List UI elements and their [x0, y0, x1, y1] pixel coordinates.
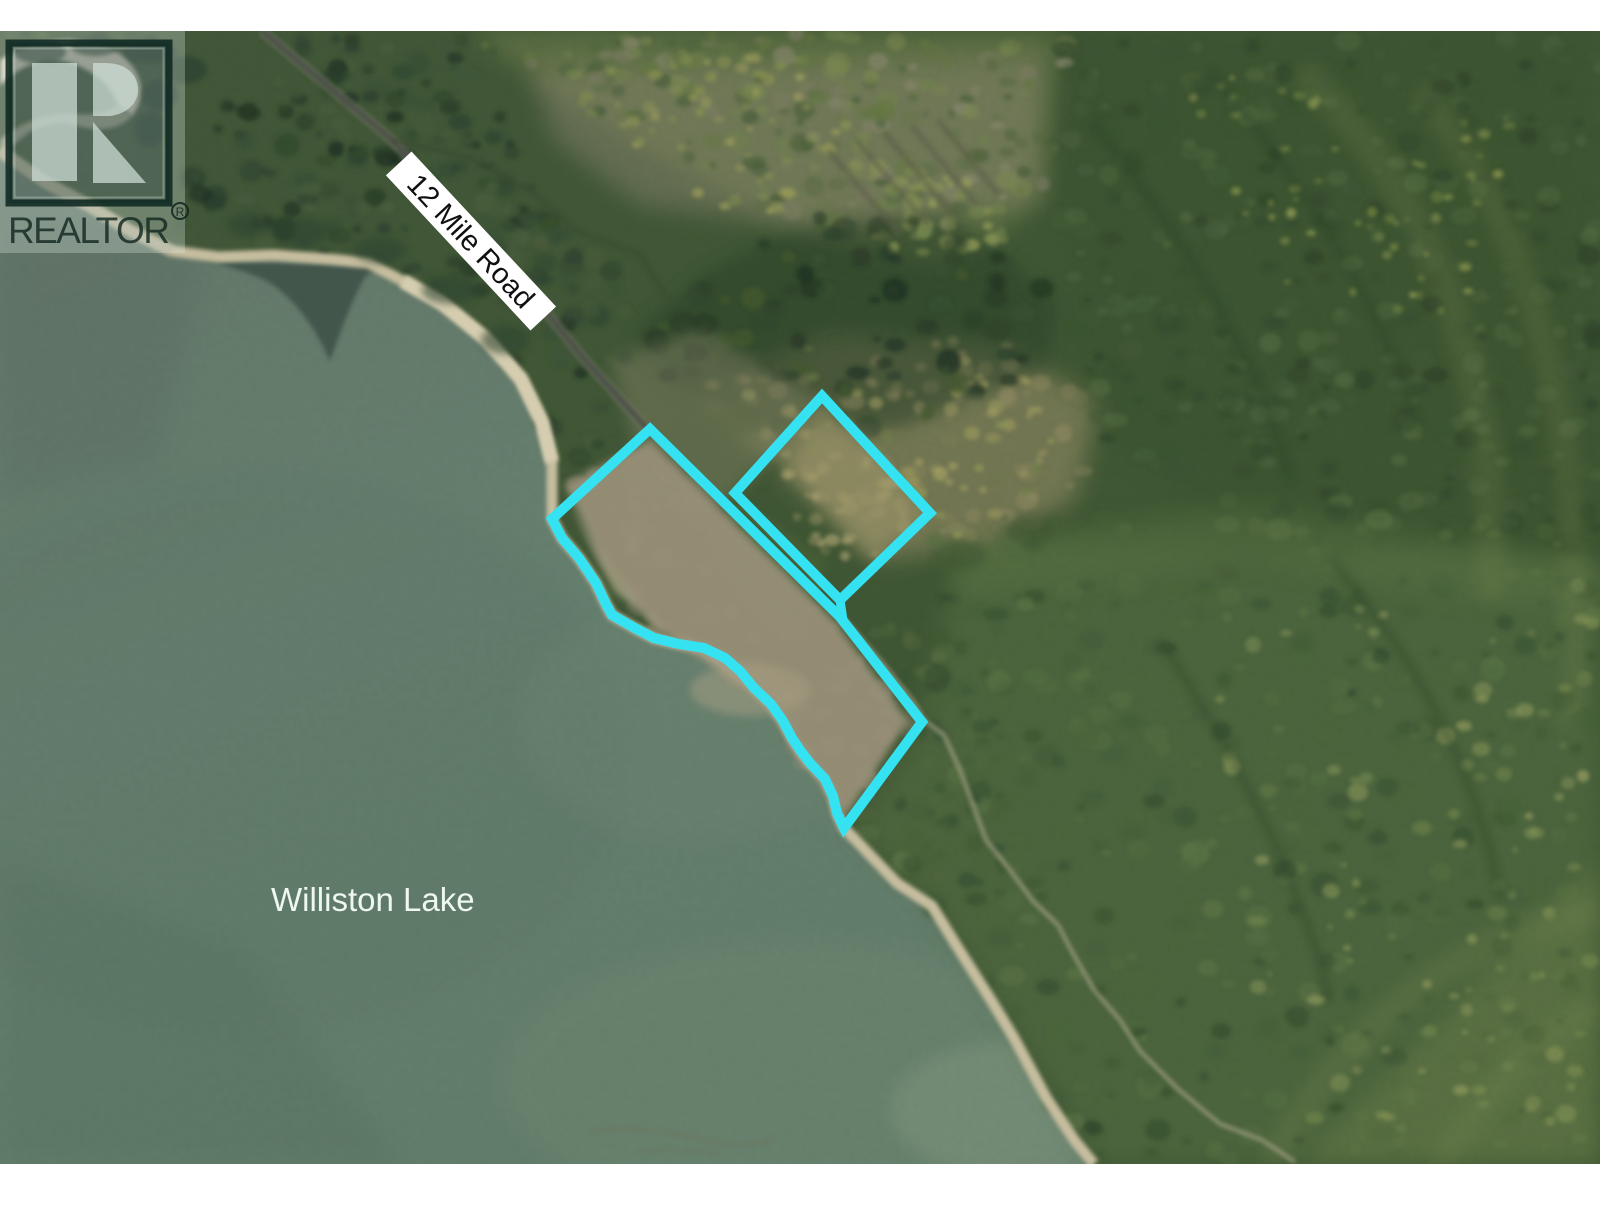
svg-text:Williston Lake: Williston Lake — [271, 881, 475, 918]
svg-text:REALTOR: REALTOR — [8, 210, 170, 251]
svg-text:R: R — [176, 205, 185, 219]
